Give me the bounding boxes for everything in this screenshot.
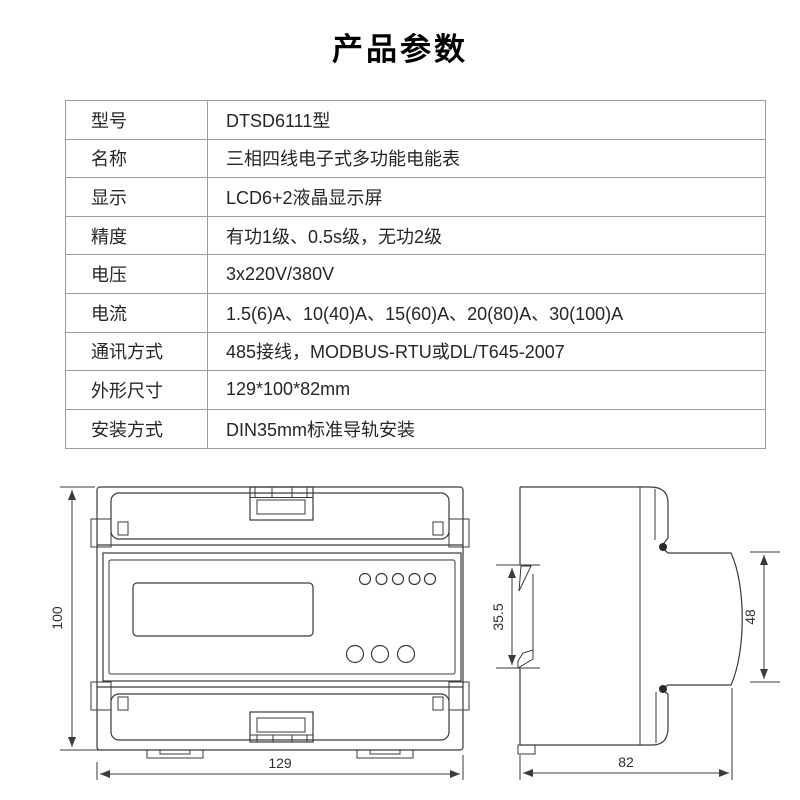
side-view-drawing: [518, 487, 742, 754]
spec-value: 三相四线电子式多功能电能表: [208, 140, 765, 178]
spec-label: 通讯方式: [66, 333, 208, 371]
product-parameters-page: 产品参数 型号DTSD6111型名称三相四线电子式多功能电能表显示LCD6+2液…: [0, 0, 800, 800]
spec-label: 安装方式: [66, 410, 208, 449]
spec-table-rows: 型号DTSD6111型名称三相四线电子式多功能电能表显示LCD6+2液晶显示屏精…: [66, 101, 765, 448]
screw-dot-bottom: [659, 685, 667, 693]
table-row: 精度有功1级、0.5s级，无功2级: [66, 217, 765, 256]
screw-dot-top: [659, 543, 667, 551]
table-row: 安装方式DIN35mm标准导轨安装: [66, 410, 765, 449]
spec-value: 1.5(6)A、10(40)A、15(60)A、20(80)A、30(100)A: [208, 294, 765, 332]
spec-value: 129*100*82mm: [208, 371, 765, 409]
spec-value: 485接线，MODBUS-RTU或DL/T645-2007: [208, 333, 765, 371]
dim-depth-label: 82: [618, 754, 634, 770]
spec-value: DTSD6111型: [208, 101, 765, 139]
panel-buttons: [347, 646, 415, 663]
table-row: 型号DTSD6111型: [66, 101, 765, 140]
spec-label: 电压: [66, 255, 208, 293]
dim-rail-label: 35.5: [490, 603, 506, 630]
table-row: 名称三相四线电子式多功能电能表: [66, 140, 765, 179]
spec-label: 精度: [66, 217, 208, 255]
front-view-drawing: [91, 487, 469, 758]
spec-table: 型号DTSD6111型名称三相四线电子式多功能电能表显示LCD6+2液晶显示屏精…: [65, 100, 766, 449]
lcd-screen: [133, 583, 313, 636]
table-row: 显示LCD6+2液晶显示屏: [66, 178, 765, 217]
dimension-drawings: 100 129: [0, 460, 800, 800]
spec-value: 有功1级、0.5s级，无功2级: [208, 217, 765, 255]
dim-front-height-label: 48: [742, 609, 758, 625]
spec-label: 显示: [66, 178, 208, 216]
dim-height-label: 100: [49, 606, 65, 630]
spec-label: 电流: [66, 294, 208, 332]
table-row: 电流1.5(6)A、10(40)A、15(60)A、20(80)A、30(100…: [66, 294, 765, 333]
table-row: 电压3x220V/380V: [66, 255, 765, 294]
spec-label: 型号: [66, 101, 208, 139]
front-view-dimensions: [60, 487, 463, 780]
spec-label: 名称: [66, 140, 208, 178]
spec-label: 外形尺寸: [66, 371, 208, 409]
dim-width-label: 129: [268, 755, 292, 771]
page-title: 产品参数: [0, 24, 800, 69]
table-row: 外形尺寸129*100*82mm: [66, 371, 765, 410]
spec-value: 3x220V/380V: [208, 255, 765, 293]
table-row: 通讯方式485接线，MODBUS-RTU或DL/T645-2007: [66, 333, 765, 372]
spec-value: DIN35mm标准导轨安装: [208, 410, 765, 449]
led-indicators: [360, 574, 436, 585]
spec-value: LCD6+2液晶显示屏: [208, 178, 765, 216]
